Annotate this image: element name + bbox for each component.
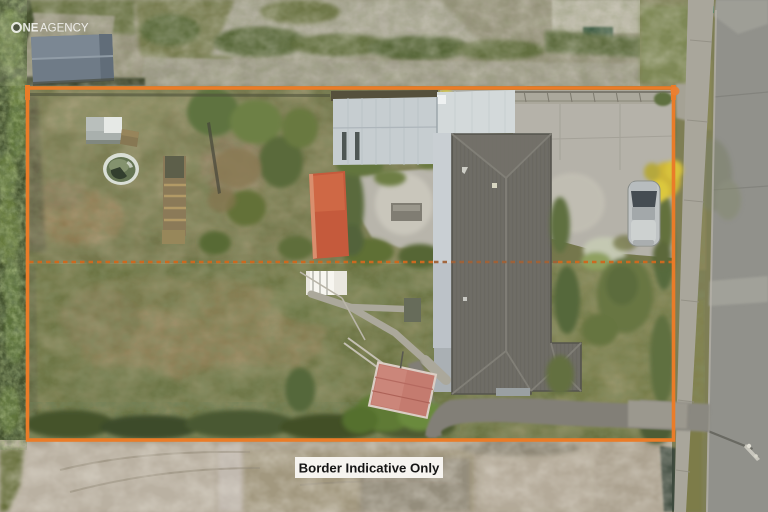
svg-text:NEAGENCY: NEAGENCY xyxy=(23,23,89,35)
svg-text:Border Indicative Only: Border Indicative Only xyxy=(299,461,440,476)
